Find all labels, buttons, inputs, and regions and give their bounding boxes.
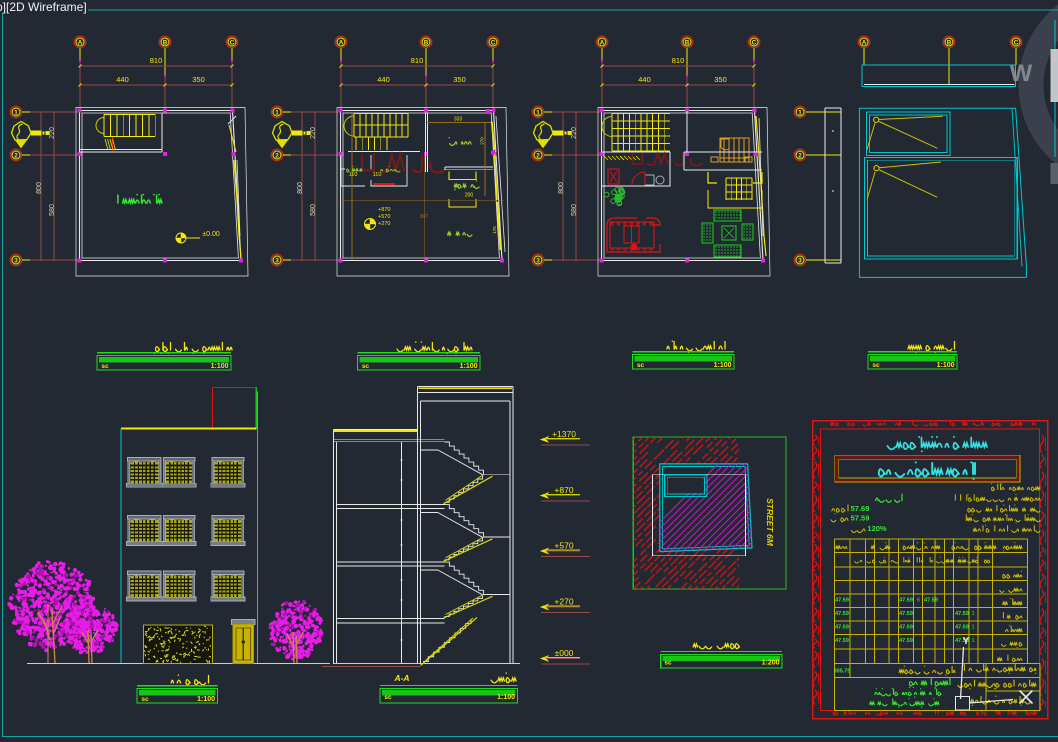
svg-text:3: 3 [798, 257, 802, 264]
svg-text:810: 810 [411, 56, 424, 65]
svg-text:220: 220 [310, 127, 317, 139]
svg-text:800: 800 [558, 182, 565, 194]
svg-text:47.59: 47.59 [899, 598, 913, 604]
svg-text:333: 333 [454, 117, 463, 123]
svg-text:175: 175 [492, 226, 497, 234]
svg-text:580: 580 [571, 204, 578, 216]
svg-text:110: 110 [349, 172, 358, 178]
svg-text:1:100: 1:100 [197, 696, 215, 703]
svg-text:B: B [685, 39, 690, 46]
svg-text:C: C [1014, 39, 1019, 46]
svg-text:+570: +570 [554, 541, 573, 551]
svg-text:±0.00: ±0.00 [202, 231, 220, 238]
svg-text:+1370: +1370 [552, 429, 576, 439]
svg-text:47.59: 47.59 [899, 625, 913, 631]
svg-text:2: 2 [275, 152, 279, 159]
svg-text:350: 350 [192, 75, 205, 84]
svg-text:±000: ±000 [555, 648, 574, 658]
svg-text:57.69: 57.69 [851, 504, 870, 513]
svg-text:220: 220 [571, 127, 578, 139]
svg-text:47.59: 47.59 [899, 611, 913, 617]
svg-text:sc: sc [384, 694, 392, 701]
svg-text:+870: +870 [378, 207, 390, 213]
svg-text:440: 440 [377, 75, 390, 84]
svg-text:1: 1 [971, 638, 974, 644]
svg-text:350: 350 [714, 75, 727, 84]
svg-text:sc: sc [362, 363, 370, 370]
svg-text:1:200: 1:200 [762, 660, 780, 667]
svg-text:3: 3 [14, 257, 18, 264]
svg-text:47.59: 47.59 [955, 611, 969, 617]
svg-text:47.59: 47.59 [835, 611, 849, 617]
svg-text:6: 6 [917, 598, 920, 604]
svg-text:1:100: 1:100 [937, 362, 955, 369]
svg-text:sc: sc [141, 696, 149, 703]
svg-text:STREET 6M: STREET 6M [765, 498, 775, 547]
svg-text:47.59: 47.59 [835, 625, 849, 631]
svg-text:p][2D Wireframe]: p][2D Wireframe] [0, 0, 87, 14]
svg-text:A: A [600, 39, 605, 46]
svg-text:305.75: 305.75 [834, 669, 851, 675]
svg-text:440: 440 [116, 75, 129, 84]
svg-text:1:100: 1:100 [497, 694, 515, 701]
svg-text:220: 220 [49, 127, 56, 139]
svg-text:B: B [163, 39, 168, 46]
svg-text:A-A: A-A [393, 673, 409, 683]
svg-text:+570: +570 [378, 214, 390, 220]
svg-text:1: 1 [798, 109, 802, 116]
svg-text:47.59: 47.59 [835, 638, 849, 644]
svg-text:C: C [752, 39, 757, 46]
svg-text:120%: 120% [867, 524, 887, 533]
svg-text:110: 110 [373, 172, 382, 178]
svg-text:1: 1 [971, 625, 974, 631]
svg-text:+870: +870 [554, 485, 573, 495]
svg-text:1:100: 1:100 [714, 362, 732, 369]
svg-text:2: 2 [536, 152, 540, 159]
svg-text:1:100: 1:100 [211, 363, 229, 370]
svg-text:Y: Y [963, 636, 970, 647]
svg-text:47.59: 47.59 [899, 638, 913, 644]
svg-text:+270: +270 [554, 597, 573, 607]
svg-text:810: 810 [672, 56, 685, 65]
svg-text:270: 270 [480, 137, 485, 145]
svg-text:+270: +270 [378, 221, 390, 227]
svg-text:A: A [862, 39, 867, 46]
svg-text:C: C [491, 39, 496, 46]
svg-text:350: 350 [453, 75, 466, 84]
svg-text:47.59: 47.59 [835, 598, 849, 604]
svg-text:2: 2 [798, 152, 802, 159]
svg-text:1: 1 [275, 109, 279, 116]
svg-text:sc: sc [101, 363, 109, 370]
svg-text:57.59: 57.59 [851, 513, 870, 522]
svg-text:sc: sc [872, 362, 880, 369]
svg-text:47.59: 47.59 [955, 625, 969, 631]
svg-text:A: A [339, 39, 344, 46]
svg-text:B: B [947, 39, 952, 46]
svg-text:580: 580 [49, 204, 56, 216]
svg-text:sc: sc [637, 362, 645, 369]
svg-text:W: W [1010, 60, 1033, 87]
svg-text:800: 800 [297, 182, 304, 194]
svg-text:200: 200 [465, 193, 474, 199]
svg-text:B: B [424, 39, 429, 46]
svg-text:47.59: 47.59 [924, 598, 938, 604]
svg-text:440: 440 [638, 75, 651, 84]
svg-text:C: C [230, 39, 235, 46]
svg-text:3: 3 [275, 257, 279, 264]
svg-text:1: 1 [14, 109, 18, 116]
svg-text:A: A [78, 39, 83, 46]
svg-text:2: 2 [14, 152, 18, 159]
svg-text:580: 580 [310, 204, 317, 216]
svg-text:1: 1 [536, 109, 540, 116]
svg-text:sc: sc [664, 660, 672, 667]
svg-text:810: 810 [150, 56, 163, 65]
svg-text:800: 800 [36, 182, 43, 194]
svg-text:3: 3 [536, 257, 540, 264]
svg-text:1:100: 1:100 [460, 363, 478, 370]
svg-text:1: 1 [971, 611, 974, 617]
